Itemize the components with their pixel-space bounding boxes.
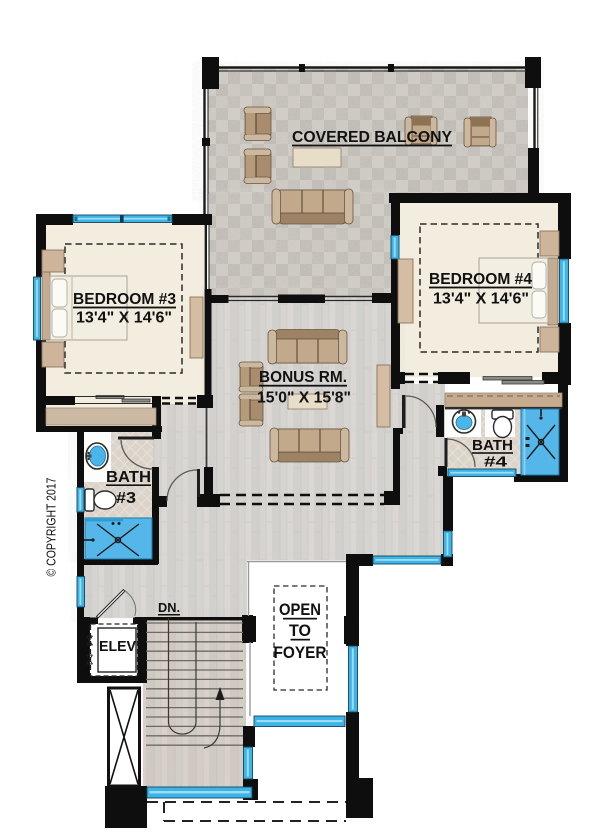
svg-text:BEDROOM #4: BEDROOM #4 — [429, 271, 532, 288]
svg-text:© COPYRIGHT 2017: © COPYRIGHT 2017 — [45, 477, 59, 576]
svg-text:#4: #4 — [484, 454, 508, 471]
svg-text:BATH: BATH — [472, 437, 513, 454]
svg-text:ELEV: ELEV — [99, 638, 136, 655]
svg-text:BATH: BATH — [106, 469, 151, 486]
svg-text:13'4" X 14'6": 13'4" X 14'6" — [76, 310, 172, 327]
svg-text:BONUS RM.: BONUS RM. — [259, 369, 347, 386]
svg-text:13'4" X 14'6": 13'4" X 14'6" — [433, 291, 529, 308]
svg-text:COVERED BALCONY: COVERED BALCONY — [292, 129, 452, 146]
svg-text:TO: TO — [289, 621, 311, 640]
svg-text:DN.: DN. — [158, 600, 180, 615]
svg-text:BEDROOM #3: BEDROOM #3 — [73, 291, 176, 308]
svg-text:FOYER: FOYER — [274, 643, 327, 662]
svg-text:OPEN: OPEN — [279, 600, 321, 619]
svg-text:#3: #3 — [116, 490, 136, 507]
svg-text:15'0" X 15'8": 15'0" X 15'8" — [257, 390, 351, 407]
